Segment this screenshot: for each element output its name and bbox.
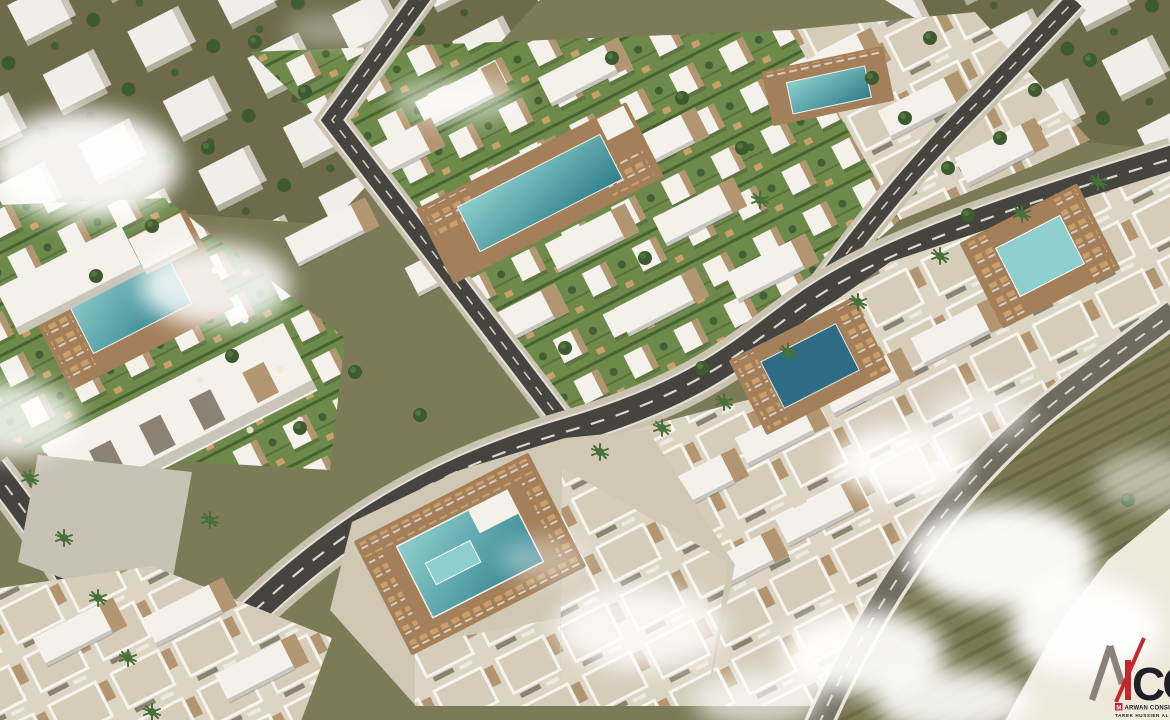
masterplan-render bbox=[0, 0, 1170, 720]
logo-monogram-cc: CC bbox=[1132, 658, 1170, 710]
mcc-logo: CC M ARWAN CONSU TAREK HUSSIEN AL bbox=[1088, 640, 1170, 720]
render-canvas: CC M ARWAN CONSU TAREK HUSSIEN AL bbox=[0, 0, 1170, 720]
logo-name-line: TAREK HUSSIEN AL bbox=[1115, 713, 1169, 718]
logo-chip-letter: M bbox=[1116, 705, 1121, 711]
logo-company-text: ARWAN CONSU bbox=[1125, 705, 1170, 711]
